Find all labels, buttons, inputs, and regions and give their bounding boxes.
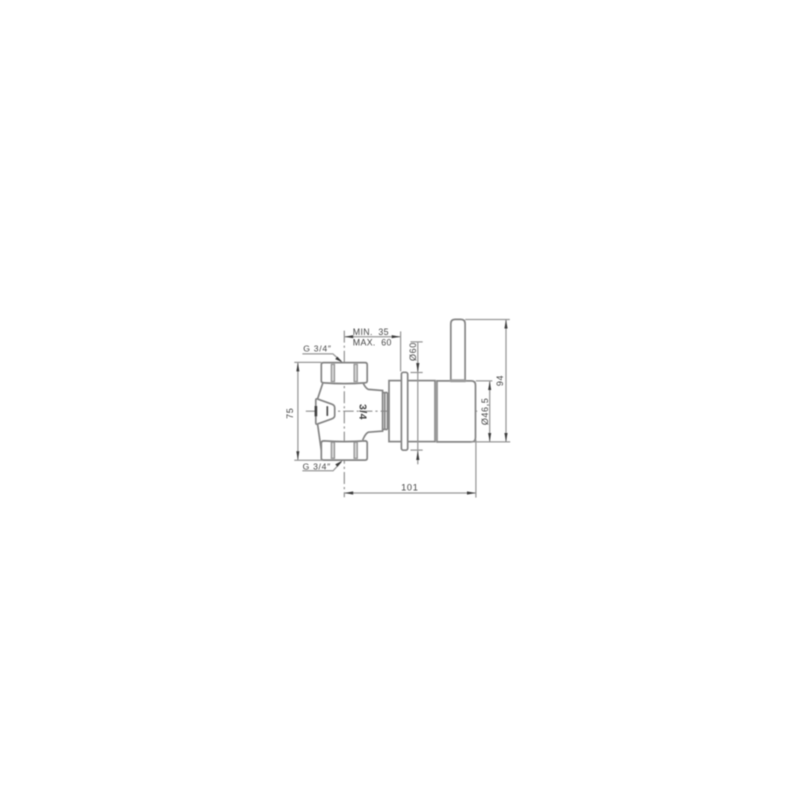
svg-text:75: 75 <box>285 408 295 419</box>
svg-text:101: 101 <box>401 482 418 492</box>
svg-text:G 3/4″: G 3/4″ <box>303 344 331 354</box>
svg-text:G 3/4″: G 3/4″ <box>303 461 331 471</box>
svg-text:3/4: 3/4 <box>357 404 369 420</box>
svg-text:MAX. 60: MAX. 60 <box>353 338 392 348</box>
svg-text:94: 94 <box>495 375 505 386</box>
svg-text:Ø46,5: Ø46,5 <box>480 398 490 426</box>
svg-text:MIN. 35: MIN. 35 <box>353 327 389 337</box>
svg-text:Ø60: Ø60 <box>408 342 418 361</box>
